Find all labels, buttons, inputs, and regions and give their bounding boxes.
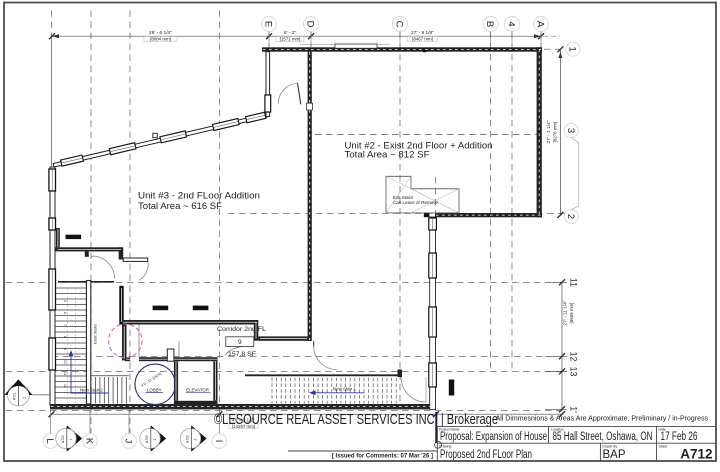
svg-text:Sheet: Sheet — [659, 444, 668, 448]
svg-text:1: 1 — [567, 47, 578, 52]
svg-text:6' - 2": 6' - 2" — [284, 30, 297, 36]
svg-text:Exit Stairs: Exit Stairs — [393, 195, 414, 200]
svg-text:5: 5 — [63, 300, 67, 302]
svg-text:157.8 SF: 157.8 SF — [228, 351, 256, 358]
svg-text:[8276 mm]: [8276 mm] — [553, 122, 558, 143]
svg-text:Drawn By: Drawn By — [603, 444, 618, 448]
svg-text:Unit #3 - 2nd FLoor Addition: Unit #3 - 2nd FLoor Addition — [138, 190, 260, 200]
svg-text:[ Issued for Comments: 07 Mar: [ Issued for Comments: 07 Mar '26 ] — [332, 454, 433, 460]
svg-text:6: 6 — [63, 312, 67, 314]
svg-text:11: 11 — [63, 372, 67, 376]
svg-text:All Dimmesnions & Areas Are Ap: All Dimmesnions & Areas Are Approximate,… — [496, 416, 709, 423]
svg-text:I: I — [213, 440, 224, 443]
svg-text:E: E — [263, 21, 274, 27]
svg-text:11: 11 — [568, 278, 578, 287]
svg-text:Proposed 2nd FLoor Plan: Proposed 2nd FLoor Plan — [440, 449, 532, 461]
svg-text:J: J — [123, 439, 134, 444]
svg-text:13: 13 — [568, 367, 578, 377]
svg-text:8: 8 — [63, 336, 67, 338]
svg-text:Proposal: Expansion of House: Proposal: Expansion of House — [440, 431, 547, 443]
svg-text:1: 1 — [23, 397, 27, 399]
svg-text:K: K — [84, 438, 95, 445]
svg-text:9: 9 — [63, 348, 67, 350]
svg-text:2: 2 — [153, 439, 157, 441]
svg-text:Total Area ~ 812 SF: Total Area ~ 812 SF — [345, 150, 431, 160]
svg-text:1': 1' — [568, 406, 578, 413]
svg-text:B: B — [484, 21, 495, 27]
svg-text:Total Area ~ 616 SF: Total Area ~ 616 SF — [138, 201, 223, 211]
svg-text:12: 12 — [63, 384, 67, 388]
svg-text:9: 9 — [238, 339, 242, 346]
svg-text:LOBBY: LOBBY — [147, 387, 162, 392]
svg-text:Corridor 2nd FL: Corridor 2nd FL — [217, 326, 266, 333]
svg-text:1: 1 — [69, 439, 73, 441]
svg-text:27' - 9 1/8": 27' - 9 1/8" — [411, 30, 434, 36]
svg-text:27' - 11 1/4": 27' - 11 1/4" — [563, 300, 569, 325]
svg-text:New Stair 1: New Stair 1 — [333, 387, 356, 392]
svg-text:A721: A721 — [13, 392, 17, 400]
svg-text:BAP: BAP — [603, 449, 626, 461]
svg-text:[1571 mm]: [1571 mm] — [280, 37, 301, 42]
svg-text:2: 2 — [194, 439, 198, 441]
svg-text:[8509 mm]: [8509 mm] — [569, 303, 574, 324]
svg-text:C: C — [394, 21, 405, 28]
svg-text:17 Feb 26: 17 Feb 26 — [661, 431, 698, 443]
svg-text:10: 10 — [63, 360, 67, 364]
svg-text:3: 3 — [565, 128, 576, 133]
svg-text:L: L — [44, 438, 55, 443]
svg-text:4: 4 — [506, 21, 517, 26]
svg-text:A: A — [535, 21, 546, 28]
svg-text:7: 7 — [63, 324, 67, 326]
svg-text:A722: A722 — [61, 435, 65, 443]
svg-text:A722: A722 — [145, 435, 149, 443]
svg-text:[8467 mm]: [8467 mm] — [412, 37, 433, 42]
svg-text:©LESOURCE REAL ASSET SERVICES: ©LESOURCE REAL ASSET SERVICES INC. | Bro… — [214, 412, 498, 428]
svg-text:[8084 mm]: [8084 mm] — [150, 37, 171, 42]
svg-text:2: 2 — [565, 214, 576, 219]
svg-text:D: D — [305, 21, 316, 28]
svg-text:Can Leave or Remove: Can Leave or Remove — [393, 200, 439, 205]
svg-text:A723: A723 — [185, 435, 189, 443]
svg-text:ELEVATOR: ELEVATOR — [186, 387, 209, 392]
svg-text:26' - 6 1/4": 26' - 6 1/4" — [149, 30, 172, 36]
svg-text:85 Hall Street, Oshawa, ON: 85 Hall Street, Oshawa, ON — [553, 431, 653, 443]
svg-text:27' - 1 1/4": 27' - 1 1/4" — [546, 120, 552, 143]
svg-text:12: 12 — [568, 352, 578, 362]
svg-text:Exist Stairs: Exist Stairs — [93, 324, 98, 344]
svg-text:A712: A712 — [680, 447, 712, 462]
